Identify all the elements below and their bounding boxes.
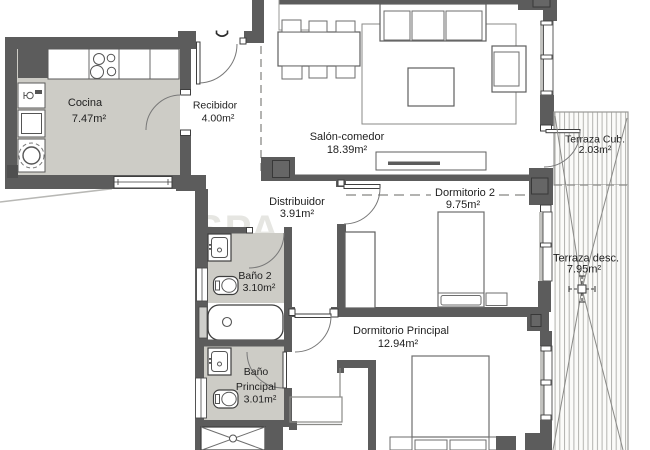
svg-text:Distribuidor: Distribuidor xyxy=(269,196,325,208)
svg-text:3.01m²: 3.01m² xyxy=(244,394,277,406)
svg-text:Dormitorio 2: Dormitorio 2 xyxy=(435,187,495,199)
svg-text:Cocina: Cocina xyxy=(68,97,103,109)
svg-text:Principal: Principal xyxy=(236,381,276,393)
svg-text:Baño 2: Baño 2 xyxy=(238,270,271,282)
svg-text:Dormitorio Principal: Dormitorio Principal xyxy=(353,325,449,337)
svg-text:9.75m²: 9.75m² xyxy=(446,199,481,211)
svg-text:12.94m²: 12.94m² xyxy=(378,338,419,350)
svg-text:Recibidor: Recibidor xyxy=(193,100,238,112)
svg-text:3.91m²: 3.91m² xyxy=(280,208,315,220)
svg-text:Salón-comedor: Salón-comedor xyxy=(310,131,385,143)
svg-text:Baño: Baño xyxy=(244,366,269,378)
svg-text:2.03m²: 2.03m² xyxy=(579,144,612,156)
svg-text:4.00m²: 4.00m² xyxy=(202,113,235,125)
svg-text:18.39m²: 18.39m² xyxy=(327,144,368,156)
svg-text:7.47m²: 7.47m² xyxy=(72,113,107,125)
svg-text:7.95m²: 7.95m² xyxy=(567,264,602,276)
svg-text:3.10m²: 3.10m² xyxy=(243,282,276,294)
